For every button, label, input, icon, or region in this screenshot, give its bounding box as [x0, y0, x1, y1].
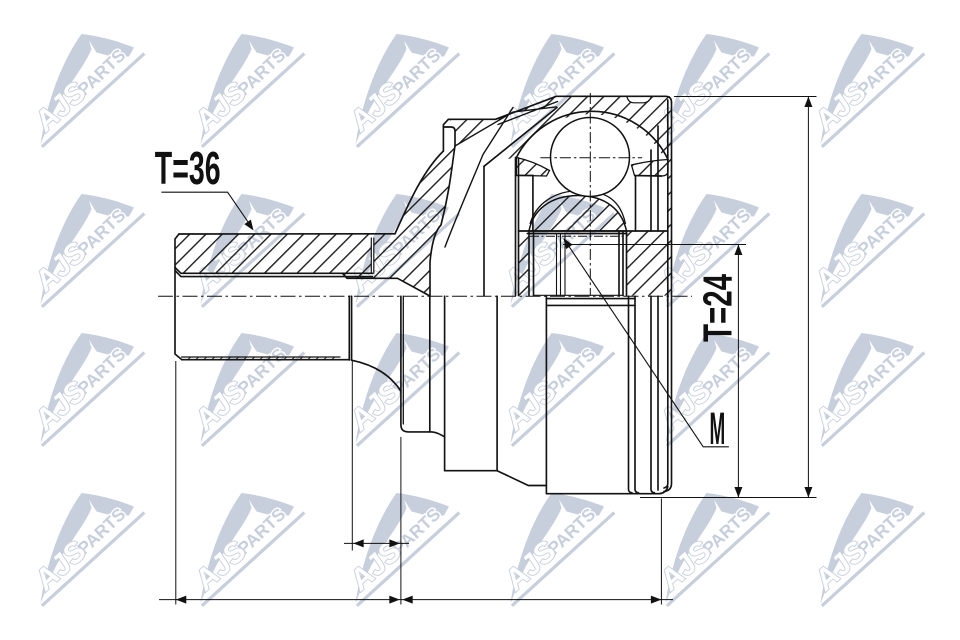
svg-text:T=36: T=36: [155, 143, 221, 195]
svg-text:T=24: T=24: [695, 274, 741, 342]
svg-text:M: M: [710, 405, 726, 455]
